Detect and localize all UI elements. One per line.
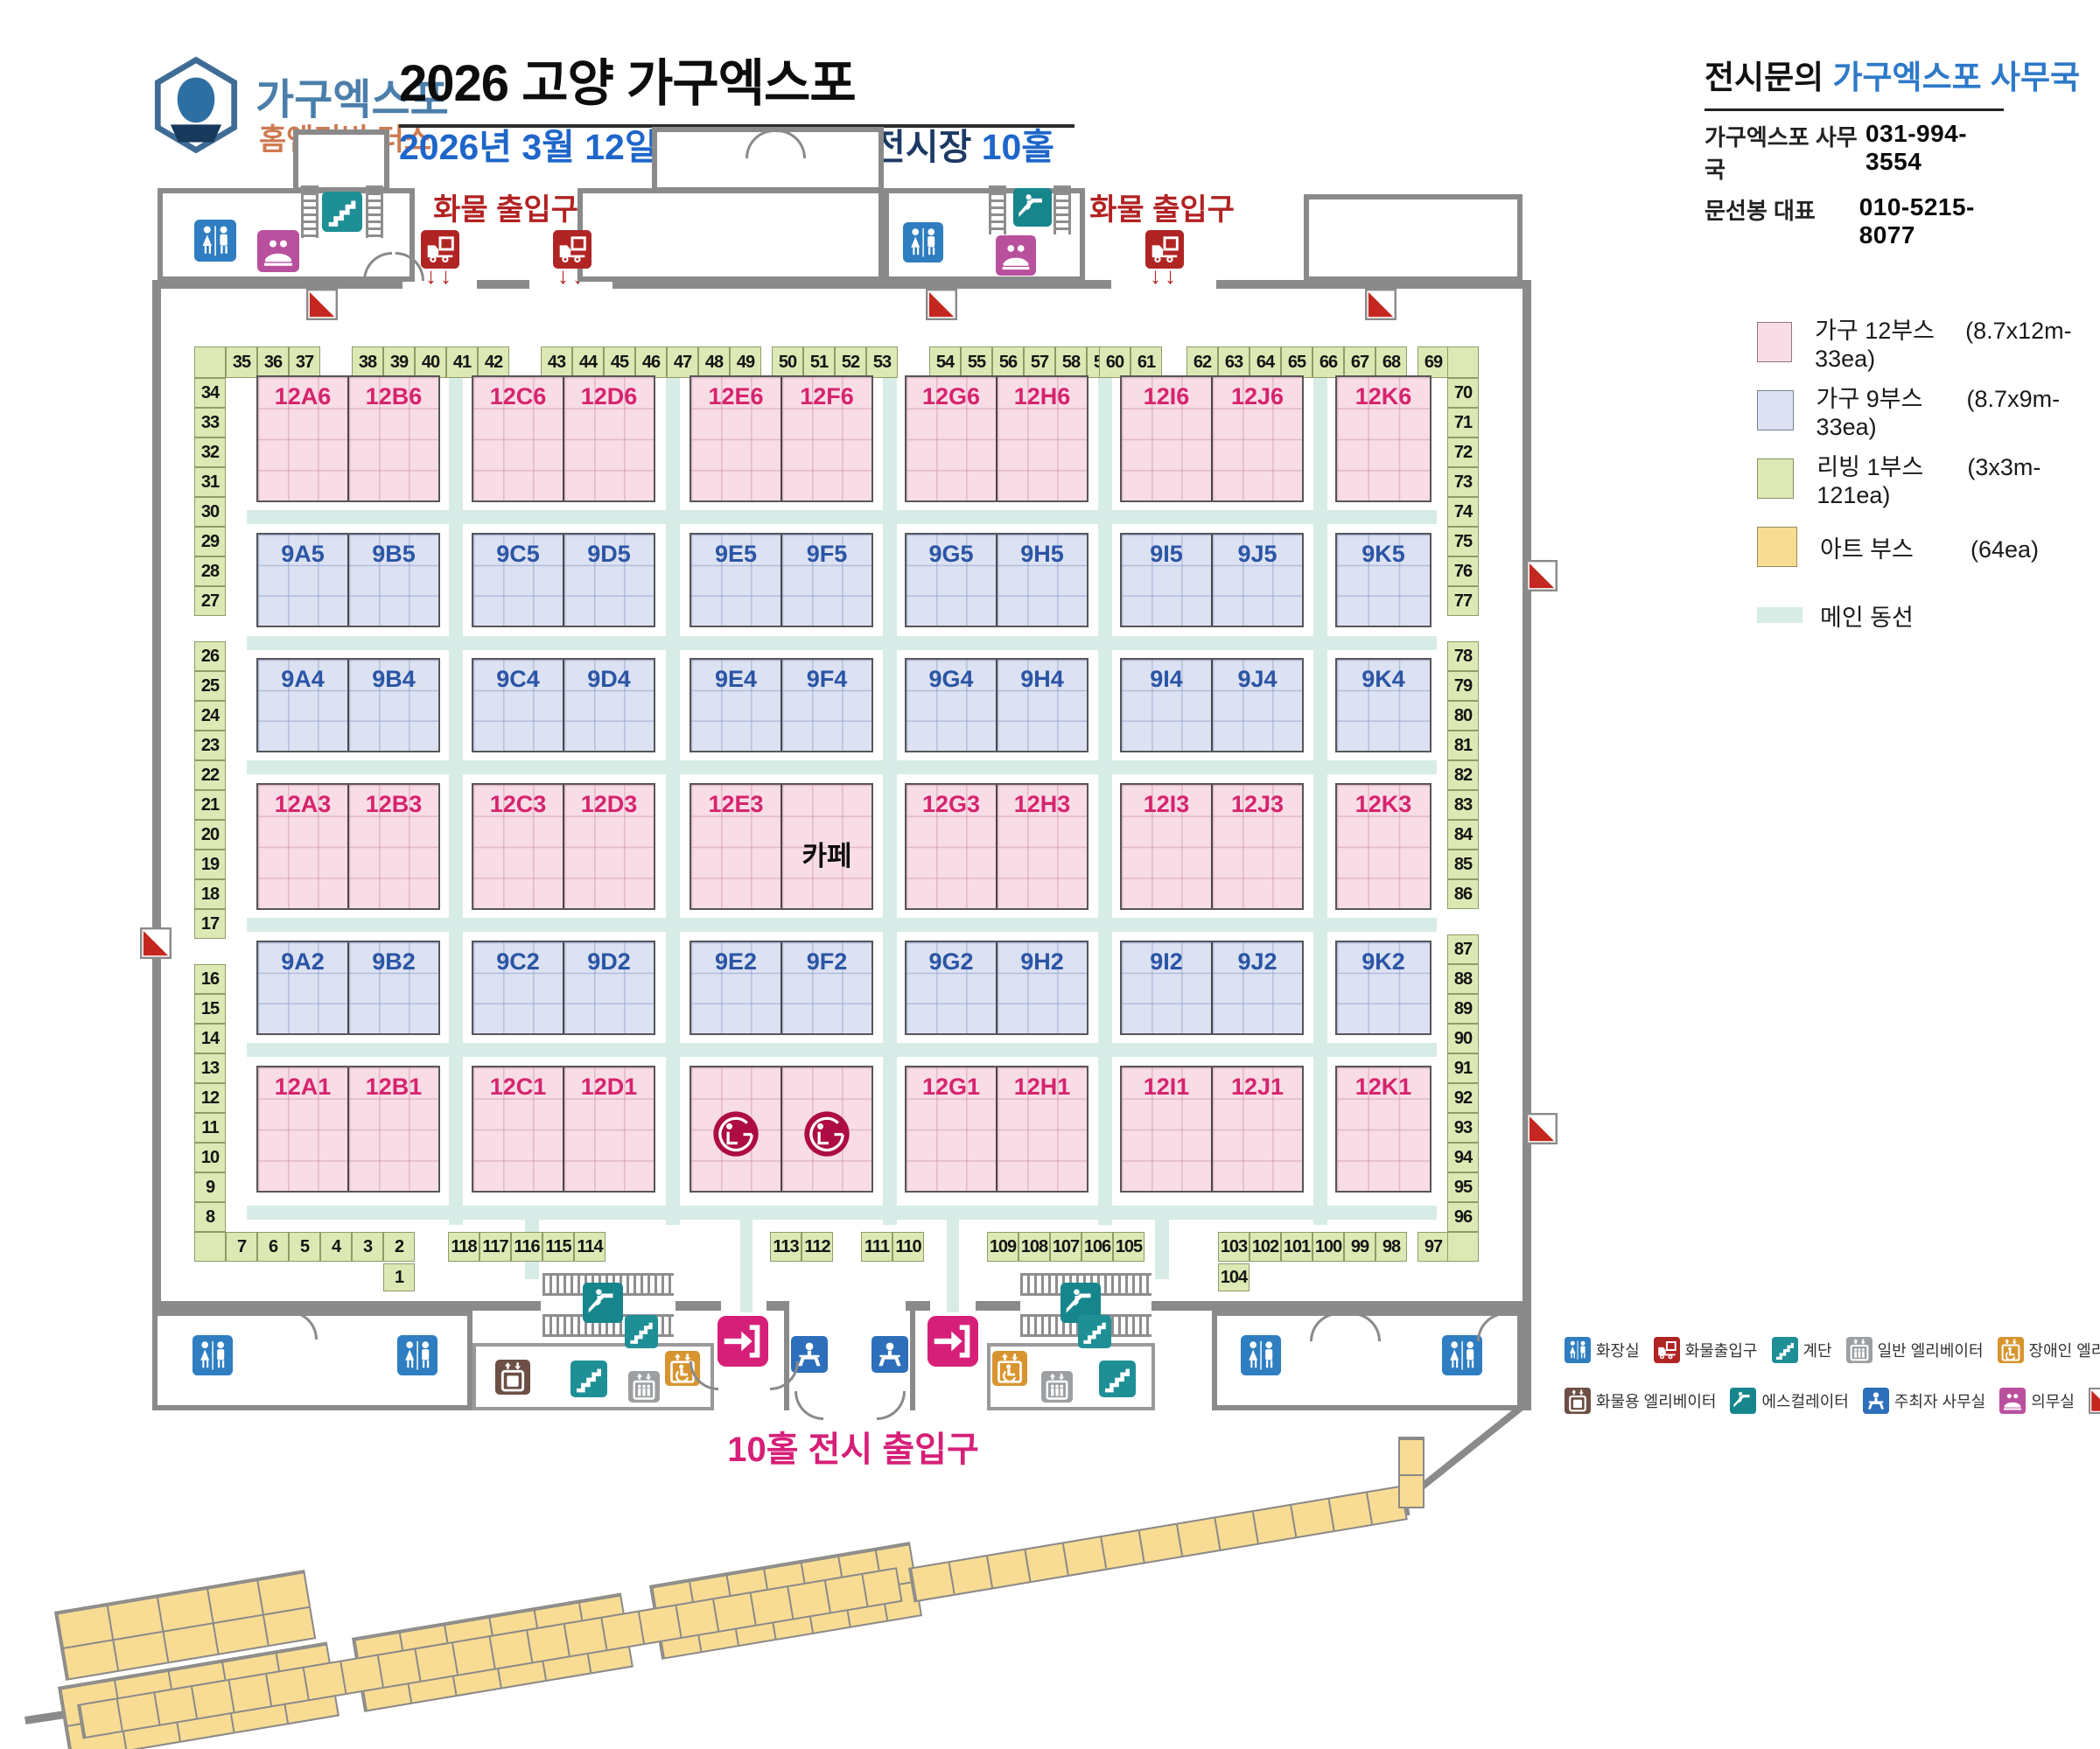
booth-12H1: 12H1 [996, 1067, 1087, 1191]
living-booth-22: 22 [194, 760, 226, 790]
diagonal-wall [1409, 1402, 1527, 1498]
hall10-entrance-label: 10홀 전시 출입구 [674, 1421, 1032, 1472]
living-booth-31: 31 [194, 467, 226, 497]
booth-9K5: 9K5 [1337, 535, 1430, 626]
booth-label: 9I4 [1122, 666, 1211, 693]
booth-block: 9C49D4 [472, 658, 655, 752]
wc-icon [192, 1330, 233, 1381]
booth-block: 9C59D5 [472, 533, 655, 627]
main-path [247, 1043, 1437, 1057]
living-booth-48: 48 [698, 346, 730, 378]
living-booth-3: 3 [352, 1232, 383, 1262]
booth-label: 9I2 [1122, 948, 1211, 976]
booth-block: 9I49J4 [1120, 658, 1304, 752]
booth-9F5: 9F5 [780, 535, 871, 626]
booth-9I2: 9I2 [1122, 942, 1211, 1033]
living-booth-104: 104 [1218, 1263, 1249, 1291]
living-booth-17: 17 [194, 909, 226, 939]
living-booth-95: 95 [1447, 1172, 1479, 1202]
booth-9H4: 9H4 [996, 660, 1087, 751]
booth-block: 9I59J5 [1120, 533, 1304, 627]
living-booth-57: 57 [1024, 346, 1055, 378]
living-booth-blank [1447, 1232, 1479, 1262]
booth-label: 12G6 [906, 383, 996, 410]
elevator-shaft [301, 185, 318, 238]
living-booth-49: 49 [730, 346, 761, 378]
booth-12I1: 12I1 [1122, 1067, 1211, 1191]
booth-label: 9K2 [1337, 948, 1430, 976]
icon-legend-label: 에스컬레이터 [1761, 1389, 1848, 1412]
living-booth-9: 9 [194, 1172, 226, 1202]
living-booth-106: 106 [1081, 1232, 1113, 1262]
living-booth-36: 36 [257, 346, 289, 378]
wall [477, 280, 529, 289]
booth-block: 12K3 [1335, 783, 1431, 910]
booth-12I6: 12I6 [1122, 377, 1211, 500]
living-booth-8: 8 [194, 1202, 226, 1232]
elev-icon [1041, 1367, 1073, 1407]
icon-legend-item-elev-dis: 장애인 엘리베이터 [1998, 1337, 2100, 1363]
living-booth-74: 74 [1447, 497, 1479, 527]
living-booth-70: 70 [1447, 378, 1479, 408]
living-booth-41: 41 [446, 346, 478, 378]
booth-label: 9H5 [997, 541, 1087, 568]
living-booth-87: 87 [1447, 934, 1479, 964]
living-booth-80: 80 [1447, 701, 1479, 731]
icon-legend-item-elev: 일반 엘리베이터 [1846, 1337, 1984, 1363]
booth-9I5: 9I5 [1122, 535, 1211, 626]
living-booth-64: 64 [1249, 346, 1281, 378]
living-booth-blank [194, 346, 226, 378]
stairs-icon [570, 1354, 607, 1403]
room [1304, 194, 1522, 282]
elev-cargo-icon [495, 1354, 530, 1400]
living-booth-35: 35 [226, 346, 257, 378]
living-booth-27: 27 [194, 586, 226, 616]
booth-label: 9C4 [473, 666, 563, 693]
living-booth-63: 63 [1218, 346, 1249, 378]
booth-block: 9K4 [1335, 658, 1431, 752]
living-booth-10: 10 [194, 1143, 226, 1172]
stairs-icon [322, 182, 362, 241]
booth-label: 12J3 [1213, 791, 1302, 818]
booth-label: 12E6 [691, 383, 780, 410]
booth-9F4: 9F4 [780, 660, 871, 751]
booth-block: 9A59B5 [256, 533, 440, 627]
icon-legend-item-medical: 의무실 [1999, 1388, 2075, 1414]
living-booth-39: 39 [383, 346, 415, 378]
icon-legend-item-wc: 화장실 [1564, 1337, 1640, 1363]
icon-legend-label: 계단 [1803, 1339, 1832, 1361]
booth-block: 12C312D3 [472, 783, 655, 910]
living-booth-blank [194, 1232, 226, 1262]
entrance-icon [927, 1311, 978, 1372]
booth-12K1: 12K1 [1337, 1067, 1430, 1191]
wc-icon [1564, 1337, 1591, 1363]
wc-icon [1442, 1330, 1482, 1381]
fire-icon [1526, 560, 1557, 591]
booth-block: 12A112B1 [256, 1066, 440, 1193]
booth-9E4: 9E4 [691, 660, 780, 751]
wc-icon [1241, 1330, 1281, 1381]
booth-label: 9G5 [906, 541, 996, 568]
booth-9A4: 9A4 [258, 660, 347, 751]
living-booth-67: 67 [1344, 346, 1375, 378]
booth-label: 9F4 [782, 666, 871, 693]
icon-legend-item-stairs: 계단 [1772, 1337, 1832, 1363]
booth-12D3: 12D3 [563, 785, 654, 908]
main-path [1155, 1206, 1169, 1279]
fire-icon [1526, 1113, 1557, 1144]
living-booth-60: 60 [1099, 346, 1130, 378]
booth-label: 9B5 [349, 541, 438, 568]
living-booth-42: 42 [478, 346, 509, 378]
booth-12J3: 12J3 [1211, 785, 1302, 908]
booth-label: 9C2 [473, 948, 563, 976]
living-booth-53: 53 [866, 346, 898, 378]
main-path [247, 636, 1437, 650]
living-booth-47: 47 [667, 346, 698, 378]
booth-12D6: 12D6 [563, 377, 654, 500]
living-booth-7: 7 [226, 1232, 257, 1262]
wall [784, 1311, 789, 1410]
booth-label: 9J5 [1213, 541, 1302, 568]
icon-legend-row: 화장실화물출입구계단일반 엘리베이터장애인 엘리베이터 [1564, 1337, 2100, 1363]
living-booth-117: 117 [479, 1232, 511, 1262]
living-booth-1: 1 [383, 1263, 415, 1291]
booth-label: 9B2 [349, 948, 438, 976]
living-booth-103: 103 [1218, 1232, 1249, 1262]
esc-icon [1730, 1388, 1756, 1414]
booth-12K6: 12K6 [1337, 377, 1430, 500]
booth-9J5: 9J5 [1211, 535, 1302, 626]
wall [910, 1311, 915, 1410]
stairs-icon [1078, 1309, 1111, 1354]
living-booth-51: 51 [803, 346, 835, 378]
booth-9A5: 9A5 [258, 535, 347, 626]
living-booth-19: 19 [194, 850, 226, 879]
booth-block: 12E3카페 [689, 783, 873, 910]
booth-label: 12I3 [1122, 791, 1211, 818]
living-booth-11: 11 [194, 1113, 226, 1143]
booth-9C2: 9C2 [473, 942, 563, 1033]
booth-label: 9A2 [258, 948, 347, 976]
booth-label: 9K5 [1337, 541, 1430, 568]
living-booth-114: 114 [574, 1232, 605, 1262]
booth-label: 12D6 [564, 383, 654, 410]
wall [766, 1301, 789, 1311]
fire-icon [926, 289, 957, 320]
booth-label: 12C6 [473, 383, 563, 410]
living-booth-34: 34 [194, 378, 226, 408]
living-booth-105: 105 [1113, 1232, 1144, 1262]
living-booth-112: 112 [801, 1232, 833, 1262]
art-booth-strip [1398, 1437, 1424, 1508]
living-booth-76: 76 [1447, 556, 1479, 586]
entrance-icon [717, 1311, 768, 1372]
booth-9I4: 9I4 [1122, 660, 1211, 751]
booth-lg [780, 1067, 871, 1191]
icon-legend-item-esc: 에스컬레이터 [1730, 1388, 1848, 1414]
icon-legend-label: 화장실 [1596, 1339, 1640, 1361]
booth-block: 12G312H3 [905, 783, 1088, 910]
booth-9G4: 9G4 [906, 660, 996, 751]
living-booth-blank [1447, 346, 1479, 378]
living-booth-62: 62 [1186, 346, 1218, 378]
medical-icon [257, 227, 299, 275]
icon-legend-label: 화물용 엘리베이터 [1596, 1389, 1716, 1412]
elevator-shaft [1053, 185, 1071, 234]
living-booth-69: 69 [1417, 346, 1449, 378]
living-booth-75: 75 [1447, 527, 1479, 556]
wall [1151, 1301, 1531, 1311]
living-booth-91: 91 [1447, 1053, 1479, 1083]
wc-icon [397, 1330, 437, 1381]
booth-9J4: 9J4 [1211, 660, 1302, 751]
booth-12E6: 12E6 [691, 377, 780, 500]
booth-block: 12I312J3 [1120, 783, 1304, 910]
booth-block: 12C112D1 [472, 1066, 655, 1193]
booth-block: 12A612B6 [256, 375, 440, 502]
booth-9K4: 9K4 [1337, 660, 1430, 751]
floor-plan: 화물 출입구 화물 출입구 ↓↓ ↓↓ ↓↓ 10홀 전시 출입구 353637… [0, 0, 2100, 1749]
living-booth-61: 61 [1130, 346, 1162, 378]
booth-12F6: 12F6 [780, 377, 871, 500]
living-booth-107: 107 [1050, 1232, 1081, 1262]
booth-block: 9E29F2 [689, 941, 873, 1035]
booth-label: 12B3 [349, 791, 438, 818]
truck-icon [1654, 1337, 1680, 1363]
booth-label: 9E2 [691, 948, 780, 976]
booth-label: 12H3 [997, 791, 1087, 818]
living-booth-15: 15 [194, 994, 226, 1024]
main-path [247, 510, 1437, 524]
icon-legend-label: 의무실 [2031, 1389, 2075, 1412]
booth-label: 9G2 [906, 948, 996, 976]
booth-label: 12D3 [564, 791, 654, 818]
booth-9F2: 9F2 [780, 942, 871, 1033]
icon-legend-label: 일반 엘리베이터 [1878, 1339, 1984, 1361]
booth-9B2: 9B2 [347, 942, 438, 1033]
living-booth-37: 37 [289, 346, 320, 378]
living-booth-29: 29 [194, 527, 226, 556]
main-path [947, 1206, 959, 1312]
living-booth-72: 72 [1447, 437, 1479, 467]
booth-block: 12A312B3 [256, 783, 440, 910]
living-booth-111: 111 [861, 1232, 892, 1262]
booth-12H6: 12H6 [996, 377, 1087, 500]
booth-label: 12C3 [473, 791, 563, 818]
booth-12C1: 12C1 [473, 1067, 563, 1191]
fire-icon [1365, 289, 1396, 320]
booth-label: 9H4 [997, 666, 1087, 693]
booth-label: 12J6 [1213, 383, 1302, 410]
lg-logo-icon [711, 1109, 760, 1158]
living-booth-68: 68 [1375, 346, 1407, 378]
booth-label: 9F2 [782, 948, 871, 976]
wc-icon [194, 215, 236, 266]
booth-9D5: 9D5 [563, 535, 654, 626]
booth-label: 12J1 [1213, 1074, 1302, 1101]
living-booth-23: 23 [194, 731, 226, 760]
esc-icon [1013, 180, 1052, 234]
elev-dis-icon [1998, 1337, 2024, 1363]
booth-12B1: 12B1 [347, 1067, 438, 1191]
booth-block [689, 1066, 873, 1193]
booth-9G2: 9G2 [906, 942, 996, 1033]
wall [906, 1301, 930, 1311]
living-booth-4: 4 [320, 1232, 352, 1262]
booth-block: 9G49H4 [905, 658, 1088, 752]
stairs-icon [1772, 1337, 1798, 1363]
booth-label: 12I1 [1122, 1074, 1211, 1101]
esc-icon [583, 1274, 623, 1332]
living-booth-89: 89 [1447, 994, 1479, 1024]
booth-label: 12I6 [1122, 383, 1211, 410]
booth-12A6: 12A6 [258, 377, 347, 500]
living-booth-116: 116 [511, 1232, 542, 1262]
booth-label: 9E4 [691, 666, 780, 693]
booth-12A3: 12A3 [258, 785, 347, 908]
icon-legend-item-fire: 소화전 [2089, 1388, 2100, 1414]
lg-logo-icon [802, 1109, 851, 1158]
main-path [666, 363, 680, 1225]
living-booth-20: 20 [194, 820, 226, 850]
truck-icon [1145, 227, 1184, 271]
booth-9D2: 9D2 [563, 942, 654, 1033]
wall [152, 280, 161, 1311]
elev-icon [1846, 1337, 1872, 1363]
living-booth-2: 2 [383, 1232, 415, 1262]
living-booth-5: 5 [289, 1232, 320, 1262]
booth-label: 9F5 [782, 541, 871, 568]
booth-label: 12G3 [906, 791, 996, 818]
booth-9B4: 9B4 [347, 660, 438, 751]
cafe-label: 카페 [782, 834, 871, 873]
booth-label: 9D2 [564, 948, 654, 976]
booth-label: 12K3 [1337, 791, 1430, 818]
booth-label: 9J2 [1213, 948, 1302, 976]
living-booth-43: 43 [541, 346, 572, 378]
main-path [449, 363, 463, 1225]
booth-block: 9E49F4 [689, 658, 873, 752]
living-booth-46: 46 [635, 346, 667, 378]
living-booth-16: 16 [194, 964, 226, 994]
booth-label: 9G4 [906, 666, 996, 693]
medical-icon [1999, 1388, 2026, 1414]
living-booth-45: 45 [604, 346, 635, 378]
booth-label: 9K4 [1337, 666, 1430, 693]
booth-label: 12E3 [691, 791, 780, 818]
elev-cargo-icon [1564, 1388, 1591, 1414]
main-path [883, 363, 897, 1225]
living-booth-58: 58 [1055, 346, 1087, 378]
booth-label: 9E5 [691, 541, 780, 568]
booth-block: 9K5 [1335, 533, 1431, 627]
living-booth-38: 38 [352, 346, 383, 378]
booth-label: 9D5 [564, 541, 654, 568]
booth-label: 12A6 [258, 383, 347, 410]
living-booth-84: 84 [1447, 820, 1479, 850]
booth-12H3: 12H3 [996, 785, 1087, 908]
door-arc [877, 1391, 906, 1420]
elevator-shaft [989, 185, 1006, 234]
booth-9H2: 9H2 [996, 942, 1087, 1033]
living-booth-50: 50 [772, 346, 803, 378]
living-booth-18: 18 [194, 879, 226, 909]
living-booth-40: 40 [415, 346, 446, 378]
living-booth-94: 94 [1447, 1143, 1479, 1172]
living-booth-25: 25 [194, 671, 226, 701]
booth-label: 12K6 [1337, 383, 1430, 410]
living-booth-110: 110 [892, 1232, 924, 1262]
living-booth-13: 13 [194, 1053, 226, 1083]
living-booth-55: 55 [961, 346, 992, 378]
booth-label: 9J4 [1213, 666, 1302, 693]
fire-icon [140, 927, 171, 959]
fire-icon [306, 289, 338, 320]
living-booth-14: 14 [194, 1024, 226, 1053]
stairs-icon [1099, 1354, 1136, 1403]
living-booth-93: 93 [1447, 1113, 1479, 1143]
booth-label: 9H2 [997, 948, 1087, 976]
booth-label: 9I5 [1122, 541, 1211, 568]
living-booth-30: 30 [194, 497, 226, 527]
booth-block: 9C29D2 [472, 941, 655, 1035]
booth-label: 12A3 [258, 791, 347, 818]
wall [1522, 280, 1531, 1410]
booth-label: 9C5 [473, 541, 563, 568]
booth-9K2: 9K2 [1337, 942, 1430, 1033]
booth-12C6: 12C6 [473, 377, 563, 500]
elev-dis-icon [992, 1346, 1027, 1391]
booth-label: 12H1 [997, 1074, 1087, 1101]
booth-12C3: 12C3 [473, 785, 563, 908]
main-path [247, 1206, 1437, 1220]
booth-9J2: 9J2 [1211, 942, 1302, 1033]
wc-icon [903, 217, 943, 268]
office-icon [871, 1328, 908, 1381]
stairs-icon [625, 1309, 658, 1354]
living-booth-101: 101 [1281, 1232, 1312, 1262]
living-booth-83: 83 [1447, 790, 1479, 820]
booth-12J6: 12J6 [1211, 377, 1302, 500]
living-booth-81: 81 [1447, 731, 1479, 760]
living-booth-33: 33 [194, 408, 226, 437]
main-path [740, 1206, 752, 1312]
booth-block: 12G612H6 [905, 375, 1088, 502]
booth-label: 12A1 [258, 1074, 347, 1101]
booth-lg [691, 1067, 780, 1191]
living-booth-100: 100 [1312, 1232, 1344, 1262]
living-booth-97: 97 [1417, 1232, 1449, 1262]
living-booth-88: 88 [1447, 964, 1479, 994]
living-booth-86: 86 [1447, 879, 1479, 909]
booth-9C4: 9C4 [473, 660, 563, 751]
living-booth-92: 92 [1447, 1083, 1479, 1113]
medical-icon [996, 233, 1036, 278]
living-booth-77: 77 [1447, 586, 1479, 616]
booth-label: 9A4 [258, 666, 347, 693]
wall [675, 1301, 721, 1311]
booth-9H5: 9H5 [996, 535, 1087, 626]
booth-label: 12B1 [349, 1074, 438, 1101]
booth-9G5: 9G5 [906, 535, 996, 626]
living-booth-73: 73 [1447, 467, 1479, 497]
booth-label: 12H6 [997, 383, 1087, 410]
living-booth-65: 65 [1281, 346, 1312, 378]
cafe-area: 카페 [780, 785, 871, 908]
